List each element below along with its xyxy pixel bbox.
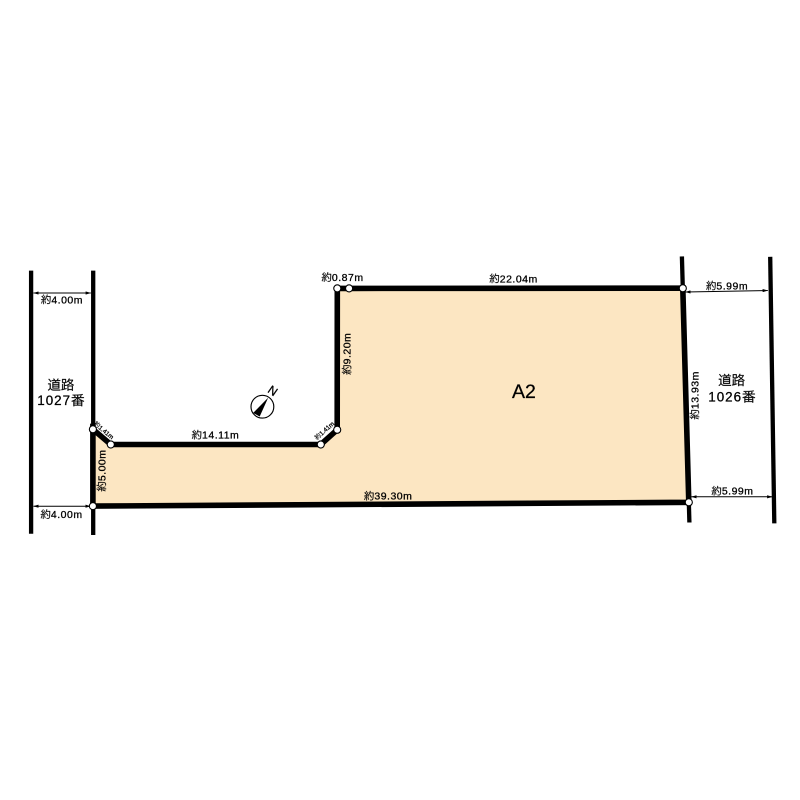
svg-text:4.00m: 4.00m bbox=[51, 509, 83, 521]
svg-text:1026: 1026 bbox=[708, 390, 742, 405]
svg-text:4.00m: 4.00m bbox=[51, 294, 83, 306]
svg-text:0.87m: 0.87m bbox=[332, 272, 364, 284]
svg-text:14.11m: 14.11m bbox=[202, 430, 239, 442]
svg-text:1027: 1027 bbox=[37, 393, 71, 408]
svg-text:9.20m: 9.20m bbox=[342, 333, 354, 365]
svg-text:5.99m: 5.99m bbox=[716, 281, 748, 293]
svg-text:5.99m: 5.99m bbox=[722, 486, 754, 498]
svg-text:13.93m: 13.93m bbox=[689, 371, 701, 409]
svg-text:39.30m: 39.30m bbox=[374, 491, 412, 503]
svg-text:22.04m: 22.04m bbox=[500, 273, 538, 285]
svg-text:5.00m: 5.00m bbox=[96, 450, 108, 482]
svg-text:A2: A2 bbox=[512, 381, 536, 403]
